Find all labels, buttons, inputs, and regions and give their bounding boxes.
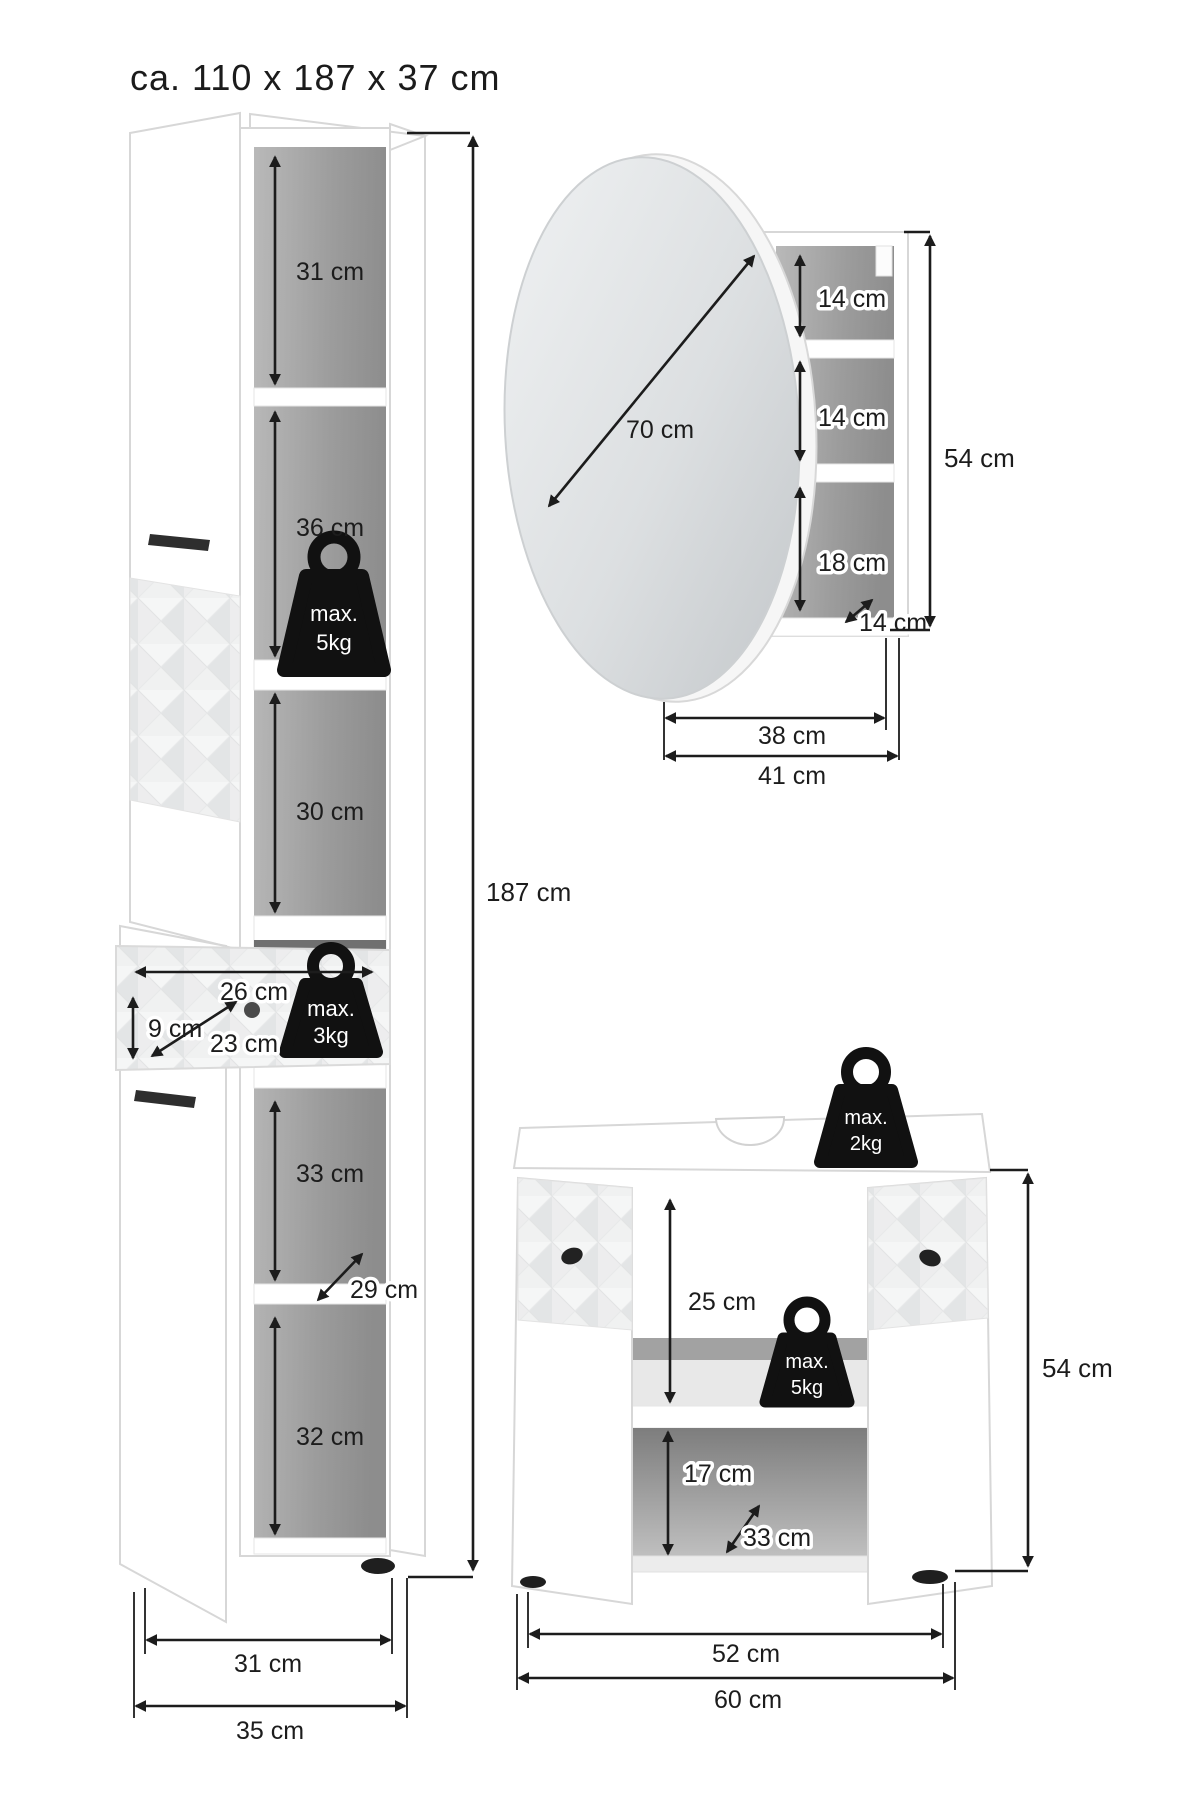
tall-cabinet-shelf	[254, 388, 386, 406]
max-2kg-weight-icon: max. 2kg	[820, 1053, 912, 1162]
dim-label-14cm-depth: 14 cm	[859, 609, 927, 637]
max-load-value: 2kg	[850, 1133, 882, 1155]
max-load-value: 5kg	[316, 630, 351, 655]
dim-label-32cm: 32 cm	[296, 1423, 364, 1451]
max-load-label: max.	[844, 1107, 887, 1129]
dim-label-41cm: 41 cm	[758, 762, 826, 790]
dim-label-52cm: 52 cm	[712, 1640, 780, 1668]
dim-label-36cm: 36 cm	[296, 514, 364, 542]
dim-label-31cm: 31 cm	[296, 258, 364, 286]
tall-cabinet-side-panel	[390, 124, 425, 1556]
max-load-label: max.	[785, 1351, 828, 1373]
dim-label-70cm: 70 cm	[626, 416, 694, 444]
mirror-cabinet-drawing: 70 cm 14 cm 14 cm 18 cm 14 cm 54 cm 38 c…	[491, 147, 1015, 790]
tall-cabinet-top-door	[130, 113, 240, 950]
max-load-label: max.	[307, 996, 355, 1021]
top-door-3d-pattern	[130, 578, 240, 822]
page-title: ca. 110 x 187 x 37 cm	[130, 57, 501, 98]
dim-label-29cm: 29 cm	[350, 1276, 418, 1304]
dim-label-54cm: 54 cm	[944, 443, 1015, 473]
max-load-value: 3kg	[313, 1023, 348, 1048]
dim-label-17cm: 17 cm	[684, 1460, 752, 1488]
dim-label-26cm: 26 cm	[220, 978, 288, 1006]
tall-cabinet-drawing: max. 5kg max. 3kg 31 cm 36 cm 30 cm 26 c…	[116, 113, 571, 1745]
vanity-drawing: max. 2kg max. 5kg 25 cm 17 cm 33 cm 54 c…	[512, 1053, 1113, 1714]
max-load-label: max.	[310, 601, 358, 626]
dim-label-35cm: 35 cm	[236, 1717, 304, 1745]
vanity-shelf-front	[632, 1406, 868, 1428]
dim-label-30cm: 30 cm	[296, 798, 364, 826]
max-load-value: 5kg	[791, 1377, 823, 1399]
dim-label-60cm: 60 cm	[714, 1686, 782, 1714]
dim-label-54cm-vanity: 54 cm	[1042, 1353, 1113, 1383]
mirror-hinge	[876, 246, 892, 276]
diagram-svg: ca. 110 x 187 x 37 cm max. 5kg	[0, 0, 1200, 1816]
dim-label-33cm-depth: 33 cm	[743, 1524, 811, 1552]
dim-label-23cm: 23 cm	[210, 1030, 278, 1058]
dim-label-33cm: 33 cm	[296, 1160, 364, 1188]
furniture-dimension-diagram: ca. 110 x 187 x 37 cm max. 5kg	[0, 0, 1200, 1816]
dim-label-25cm: 25 cm	[688, 1288, 756, 1316]
dim-label-18cm: 18 cm	[818, 549, 886, 577]
tall-cabinet-bottom-panel	[254, 1538, 386, 1554]
vanity-foot	[912, 1570, 948, 1584]
dim-label-14cm-middle: 14 cm	[818, 404, 886, 432]
dim-label-187cm: 187 cm	[486, 877, 571, 907]
cabinet-foot	[361, 1558, 395, 1574]
dim-label-31cm-width: 31 cm	[234, 1650, 302, 1678]
dim-label-14cm-top: 14 cm	[818, 285, 886, 313]
dim-label-38cm: 38 cm	[758, 722, 826, 750]
vanity-floor	[632, 1556, 868, 1572]
vanity-foot	[520, 1576, 546, 1588]
